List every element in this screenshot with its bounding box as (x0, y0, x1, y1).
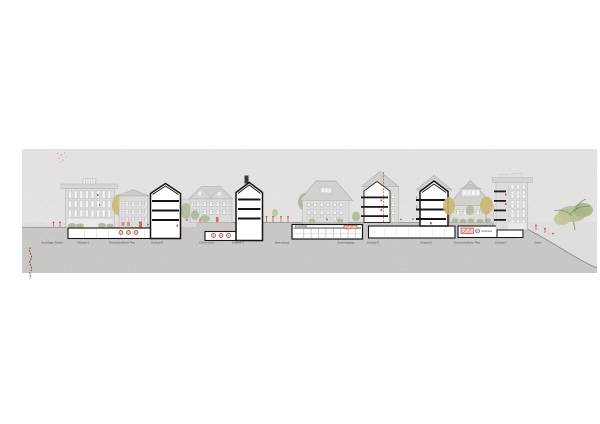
small-tree-mid (272, 209, 278, 217)
basement-mid-furniture (212, 234, 231, 238)
garage-red-zone (344, 225, 357, 229)
ground-label: Gebäude C (232, 242, 245, 245)
ground-label: Gebäude D (367, 242, 380, 245)
underground-garage: Einstellhalle (292, 225, 363, 240)
building-b-door (122, 222, 125, 226)
building-c-section (151, 184, 181, 239)
ground-label: Ernst-Egger-Strasse (41, 242, 63, 245)
building-j-elevation (493, 174, 533, 238)
ground-label: Grüner Garten (199, 242, 215, 245)
basement-right-1-columns (378, 228, 448, 237)
drawing-svg: Einstellhalle (0, 0, 600, 424)
ground-label: Quartiersgarage (337, 242, 355, 245)
ground-label: Garten (534, 242, 542, 245)
architectural-section-drawing: Einstellhalle (0, 0, 600, 424)
green-tree-1 (181, 203, 191, 219)
building-b-elevation (117, 190, 150, 228)
ground-label: Gebäude E (420, 242, 433, 245)
basement-building-j (497, 230, 523, 238)
ground-label: Seitenstrasse (275, 242, 290, 245)
connection-label: Anschluss (482, 230, 493, 233)
basement-left-furniture (119, 231, 138, 235)
building-a-roof-slab (61, 184, 118, 189)
ground-label: Gemeinschaftlicher Platz (454, 242, 481, 245)
ground-label: Gemeinschaftlicher Platz (109, 242, 136, 245)
ground-label: Gebäude F (495, 242, 508, 245)
building-a-elevation (61, 179, 118, 229)
ground-label: Gebäude B (151, 242, 164, 245)
ground-label: Gebäude A (77, 242, 89, 245)
garage-label: Einstellhalle (295, 225, 308, 228)
